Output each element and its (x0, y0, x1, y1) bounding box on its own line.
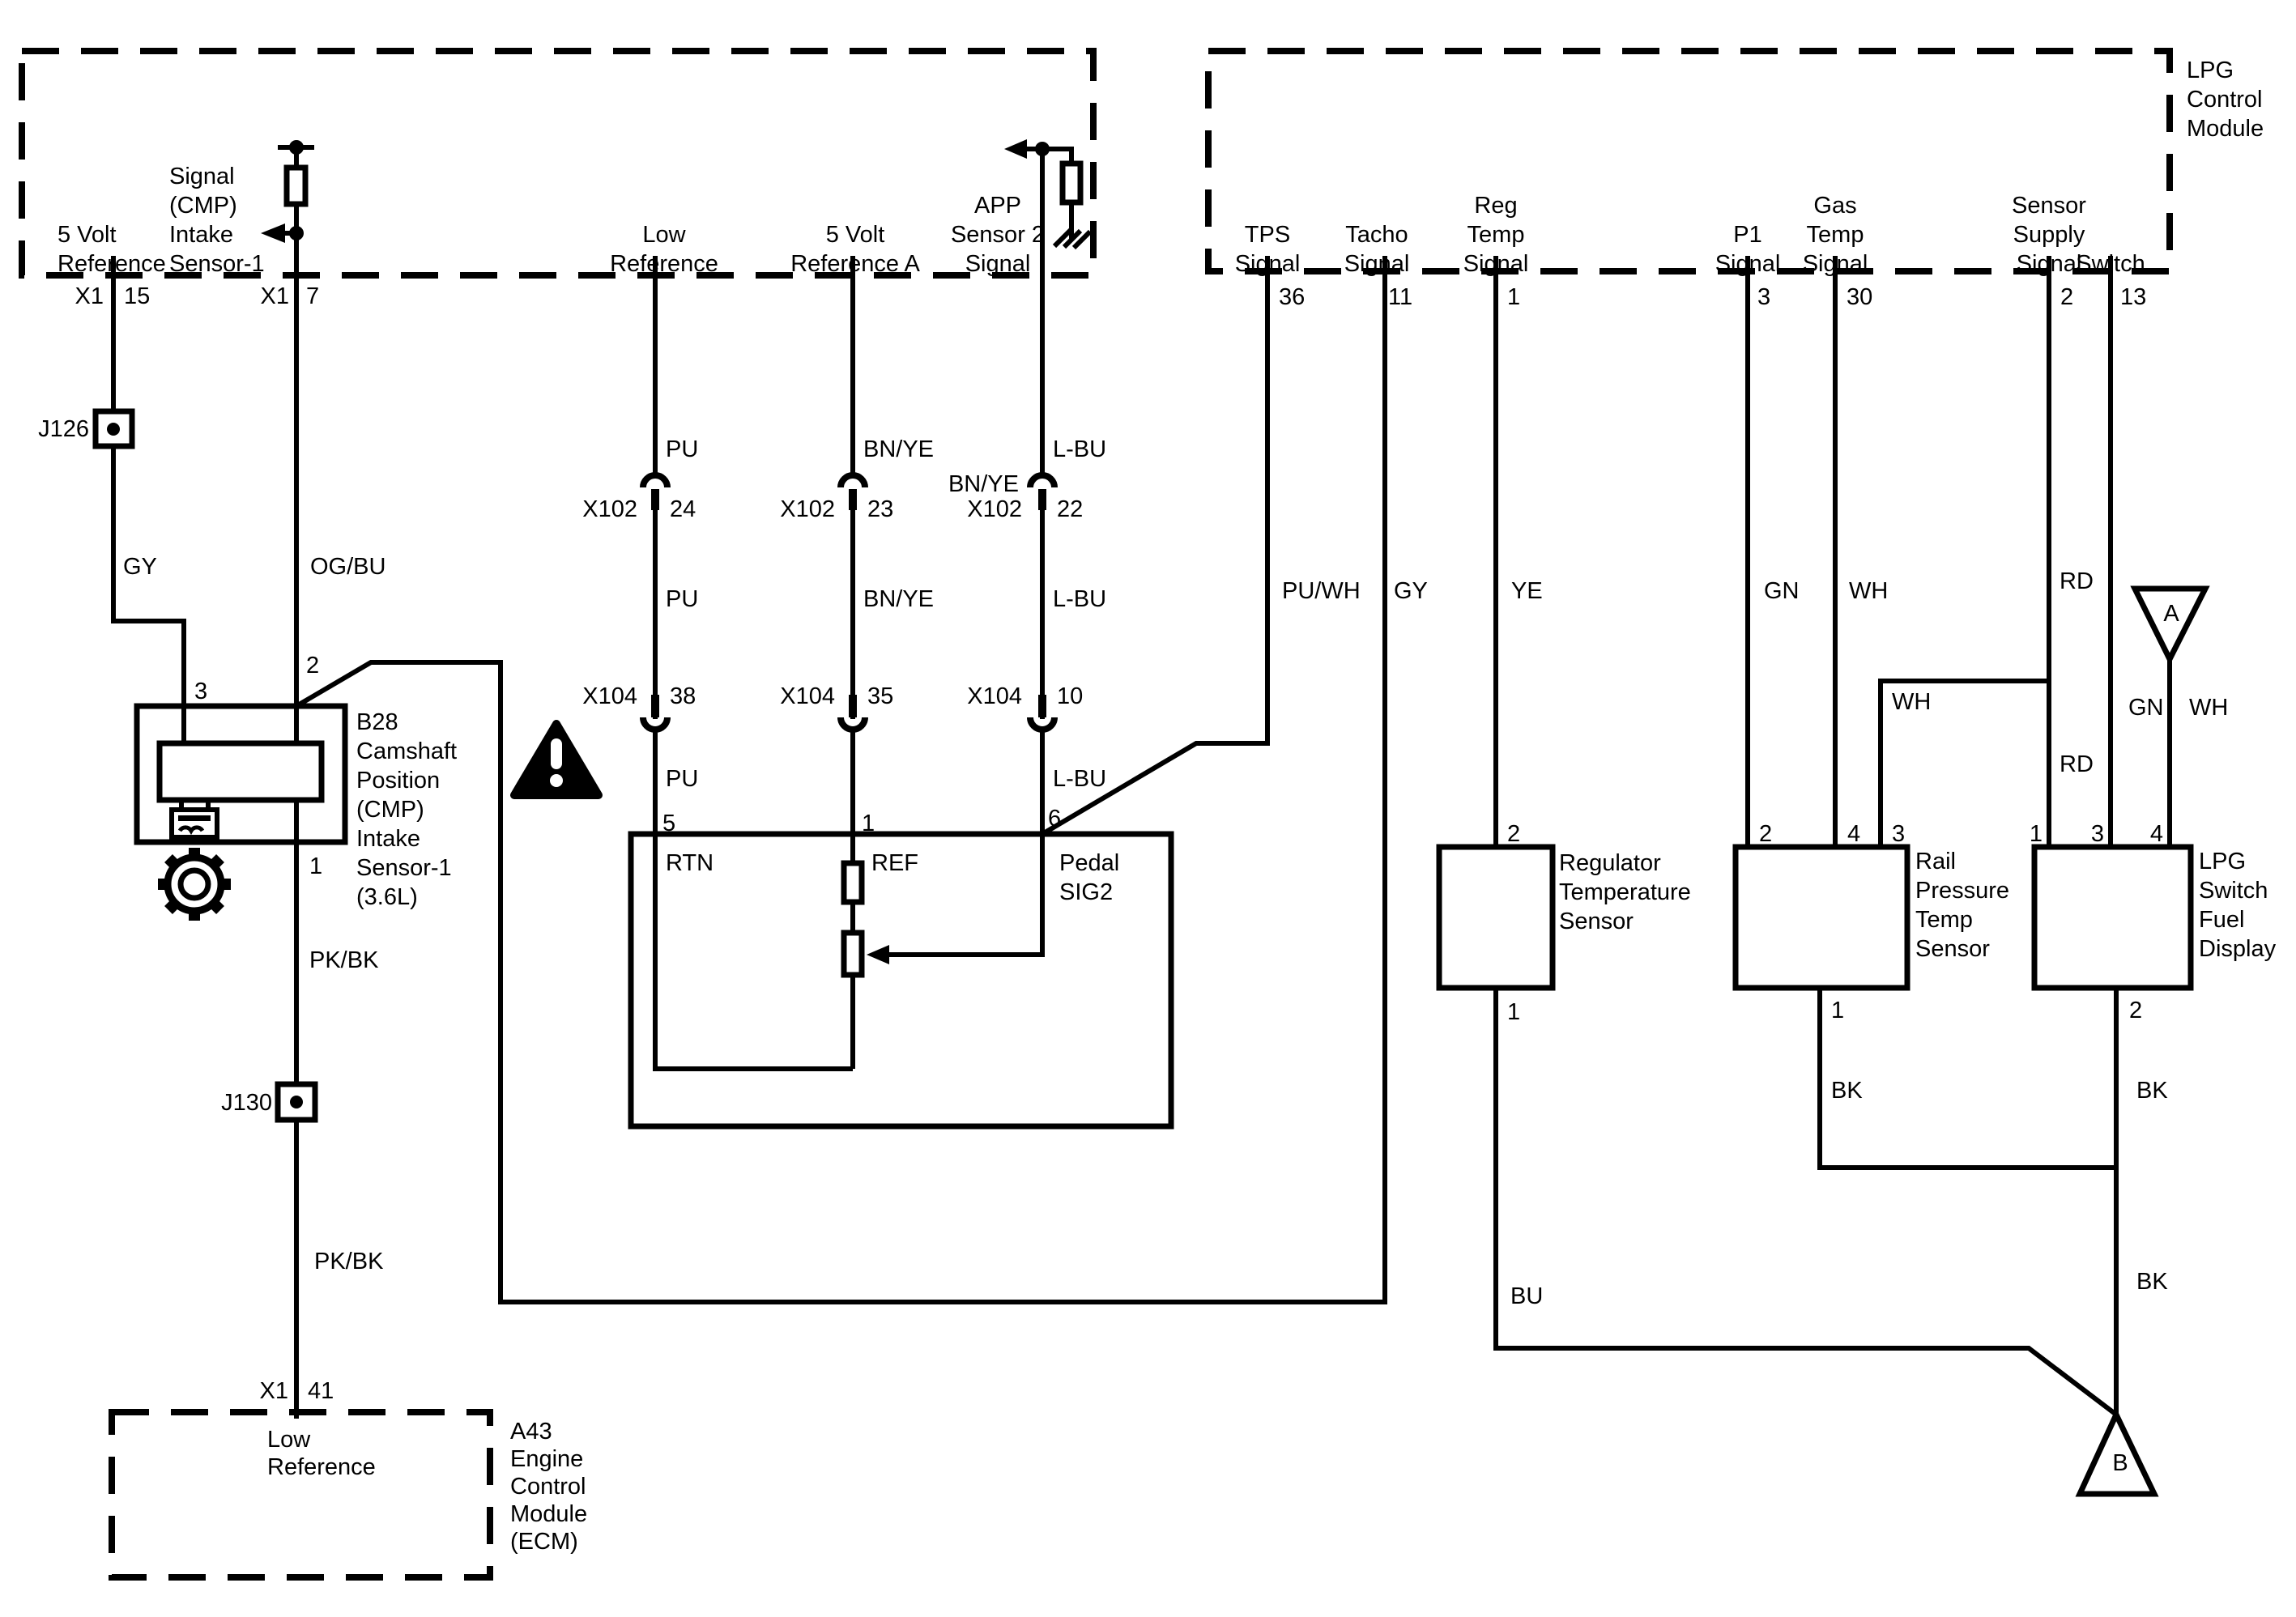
terminal-sensor-supply-label: Sensor (2012, 191, 2086, 220)
wire-color-label: L-BU (1053, 585, 1106, 614)
resistor-icon (844, 863, 862, 902)
wire-color-label: GY (1394, 577, 1428, 606)
fuel-display-name: Switch (2199, 876, 2268, 905)
fuel-display-pin-number: 4 (2150, 819, 2163, 849)
b28-name: (3.6L) (356, 883, 418, 912)
x104-pin-number: 10 (1057, 682, 1083, 711)
terminal-pin-number: 41 (308, 1377, 334, 1406)
b28-name: Sensor-1 (356, 853, 452, 883)
terminal-tacho-label: Tacho (1345, 220, 1408, 249)
ecm-low-reference-label: Low (267, 1425, 310, 1454)
ecm-low-reference-label: Reference (267, 1453, 376, 1482)
terminal-regtemp-label: Temp (1467, 220, 1525, 249)
fuel-display-pin-number: 2 (2129, 996, 2142, 1025)
terminal-pin-number: 11 (1388, 283, 1412, 312)
terminal-app-sensor2-label: Signal (965, 249, 1031, 279)
regulator-sensor-name: Temperature (1559, 878, 1691, 907)
b28-name: B28 (356, 708, 398, 737)
wire-color-label: BN/YE (863, 585, 934, 614)
terminal-pin-number: 15 (124, 282, 150, 311)
wire-color-label: BU (1510, 1282, 1543, 1311)
terminal-pin-number: 7 (306, 282, 319, 311)
wire-color-label: GN (1764, 577, 1800, 606)
ecm-module-name: Control (510, 1472, 586, 1501)
pedal-sig2-label: Pedal (1059, 849, 1119, 878)
x104-connector-id: X104 (780, 682, 835, 711)
terminal-5v-reference-label: Reference (58, 249, 166, 279)
regulator-pin-number: 2 (1507, 819, 1520, 849)
terminal-tps-label: Signal (1235, 249, 1301, 279)
wire-color-label: BK (2136, 1267, 2168, 1296)
terminal-sensor-supply-label: Supply (2013, 220, 2085, 249)
junction-dot (289, 226, 304, 240)
rail-pressure-temp-sensor-box (1736, 847, 1907, 988)
resistor-icon (1063, 164, 1080, 202)
terminal-app-sensor2-label: APP (974, 191, 1021, 220)
terminal-sensor-supply-label: Signal (2017, 249, 2082, 279)
rail-pin-number: 4 (1847, 819, 1860, 849)
wire-tps-puwh (1042, 256, 1267, 834)
wiring-diagram-page: 5 Volt Reference X1 15 Signal (CMP) Inta… (0, 0, 2296, 1617)
wire-color-label: BN/YE (948, 470, 1019, 499)
resistor-icon (287, 168, 305, 204)
splice-j130-label: J130 (221, 1088, 272, 1117)
terminal-regtemp-label: Signal (1463, 249, 1529, 279)
fuel-display-name: LPG (2199, 847, 2246, 876)
wire-color-label: OG/BU (310, 552, 386, 581)
lpg-switch-fuel-display-box (2034, 847, 2191, 988)
wire-color-label: RD (2060, 750, 2094, 779)
left-arrow-icon (261, 223, 285, 243)
wire-color-label: WH (2189, 693, 2228, 722)
terminal-cmp-signal-label: (CMP) (169, 191, 237, 220)
left-arrow-icon (1004, 139, 1027, 159)
b28-pickup-bar (178, 815, 211, 821)
terminal-p1-label: Signal (1715, 249, 1781, 279)
wire-color-label: BN/YE (863, 435, 934, 464)
terminal-tacho-label: Signal (1344, 249, 1410, 279)
wire-color-label: WH (1892, 687, 1931, 717)
terminal-pin-number: 36 (1279, 283, 1305, 312)
ecm-module-name: Engine (510, 1445, 583, 1474)
lpg-module-name: LPG (2187, 56, 2234, 85)
b28-name: (CMP) (356, 795, 424, 824)
terminal-5v-reference-a-label: 5 Volt (826, 220, 885, 249)
regulator-pin-number: 1 (1507, 998, 1520, 1027)
x104-pin-number: 38 (670, 682, 696, 711)
terminal-regtemp-label: Reg (1474, 191, 1517, 220)
b28-name: Position (356, 766, 440, 795)
wire-color-label: YE (1511, 577, 1543, 606)
terminal-switch-label: Switch (2076, 249, 2145, 279)
b28-inner-element (160, 743, 322, 800)
terminal-tps-label: TPS (1245, 220, 1290, 249)
terminal-pin-number: 1 (1507, 283, 1520, 312)
pedal-rtn-label: RTN (666, 849, 714, 878)
fuel-display-pin-number: 1 (2030, 819, 2043, 849)
gear-icon (158, 848, 231, 921)
wire-color-label: WH (1849, 577, 1888, 606)
wire-sensor-supply-rd-wh (1881, 256, 2049, 847)
resistor-icon (844, 933, 862, 975)
terminal-low-reference-label: Reference (610, 249, 718, 279)
wire-color-label: PU (666, 764, 698, 794)
terminal-pin-number: 13 (2120, 283, 2146, 312)
b28-name: Intake (356, 824, 420, 853)
ecm-module-name: A43 (510, 1417, 552, 1446)
offpage-a-label: A (2163, 599, 2179, 628)
wire-color-label: BK (2136, 1076, 2168, 1105)
terminal-connector-id: X1 (261, 282, 289, 311)
terminal-gastemp-label: Signal (1803, 249, 1868, 279)
terminal-low-reference-label: Low (642, 220, 685, 249)
fuel-display-name: Fuel (2199, 905, 2244, 934)
fuel-display-name: Display (2199, 934, 2276, 964)
wire-color-label: PK/BK (309, 946, 378, 975)
rail-sensor-name: Temp (1915, 905, 1973, 934)
rail-pin-number: 3 (1892, 819, 1905, 849)
wire-color-label: L-BU (1053, 764, 1106, 794)
lpg-module-name: Module (2187, 114, 2264, 143)
x102-pin-number: 24 (670, 495, 696, 524)
terminal-app-sensor2-label: Sensor 2 (951, 220, 1045, 249)
terminal-connector-id: X1 (75, 282, 104, 311)
b28-pin-number: 1 (309, 852, 322, 881)
rail-sensor-name: Rail (1915, 847, 1956, 876)
wire-color-label: PU (666, 435, 698, 464)
terminal-cmp-signal-label: Intake (169, 220, 233, 249)
ecm-module-name: (ECM) (510, 1527, 578, 1556)
rail-sensor-name: Pressure (1915, 876, 2009, 905)
junction-dot (1035, 142, 1050, 156)
x102-pin-number: 22 (1057, 495, 1083, 524)
terminal-gastemp-label: Gas (1813, 191, 1856, 220)
pedal-sig2-label: SIG2 (1059, 878, 1113, 907)
x102-connector-id: X102 (967, 495, 1022, 524)
ecm-module-name: Module (510, 1500, 587, 1529)
wire-color-label: L-BU (1053, 435, 1106, 464)
terminal-5v-reference-a-label: Reference A (790, 249, 920, 279)
splice-j126-dot (107, 423, 120, 436)
terminal-connector-id: X1 (260, 1377, 288, 1406)
terminal-gastemp-label: Temp (1807, 220, 1864, 249)
pedal-ref-label: REF (871, 849, 918, 878)
x102-connector-id: X102 (780, 495, 835, 524)
terminal-pin-number: 3 (1757, 283, 1770, 312)
junction-dot (289, 140, 304, 155)
regulator-sensor-name: Regulator (1559, 849, 1661, 878)
wire-color-label: BK (1831, 1076, 1863, 1105)
b28-pin-number: 3 (194, 677, 207, 706)
pedal-pin-number: 5 (662, 809, 675, 838)
splice-j130-dot (290, 1096, 303, 1108)
wire-rail-bk (1820, 988, 2116, 1168)
pedal-pin-number: 6 (1048, 804, 1061, 833)
b28-pin-number: 2 (306, 651, 319, 680)
x104-pin-number: 35 (867, 682, 893, 711)
x104-connector-id: X104 (582, 682, 637, 711)
wire-cmp-to-tacho-gy (296, 256, 1385, 1302)
rail-pin-number: 1 (1831, 996, 1844, 1025)
regulator-temp-sensor-box (1439, 847, 1553, 988)
terminal-pin-number: 2 (2060, 283, 2073, 312)
lpg-module-name: Control (2187, 85, 2263, 114)
wire-color-label: PU (666, 585, 698, 614)
offpage-b-label: B (2112, 1449, 2128, 1478)
warning-icon (514, 724, 598, 795)
wire-color-label: RD (2060, 567, 2094, 596)
terminal-5v-reference-label: 5 Volt (58, 220, 117, 249)
terminal-cmp-signal-label: Signal (169, 162, 235, 191)
pedal-pin-number: 1 (862, 809, 875, 838)
wire-app-sensor2-lbu (1027, 149, 1071, 834)
wire-5v-reference-gy (113, 256, 184, 706)
rail-pin-number: 2 (1759, 819, 1772, 849)
regulator-sensor-name: Sensor (1559, 907, 1634, 936)
x104-connector-id: X104 (967, 682, 1022, 711)
terminal-cmp-signal-label: Sensor-1 (169, 249, 265, 279)
b28-pickup-box (172, 810, 217, 837)
terminal-pin-number: 30 (1847, 283, 1872, 312)
splice-j126-label: J126 (38, 415, 89, 444)
wire-color-label: PU/WH (1282, 577, 1361, 606)
wire-regtemp-ye-bu (1496, 256, 2116, 1415)
wire-color-label: GY (123, 552, 157, 581)
x102-pin-number: 23 (867, 495, 893, 524)
fuel-display-pin-number: 3 (2091, 819, 2104, 849)
rail-sensor-name: Sensor (1915, 934, 1990, 964)
wire-color-label: PK/BK (314, 1247, 383, 1276)
terminal-p1-label: P1 (1733, 220, 1761, 249)
b28-name: Camshaft (356, 737, 457, 766)
x102-connector-id: X102 (582, 495, 637, 524)
wire-color-label: GN (2128, 693, 2164, 722)
